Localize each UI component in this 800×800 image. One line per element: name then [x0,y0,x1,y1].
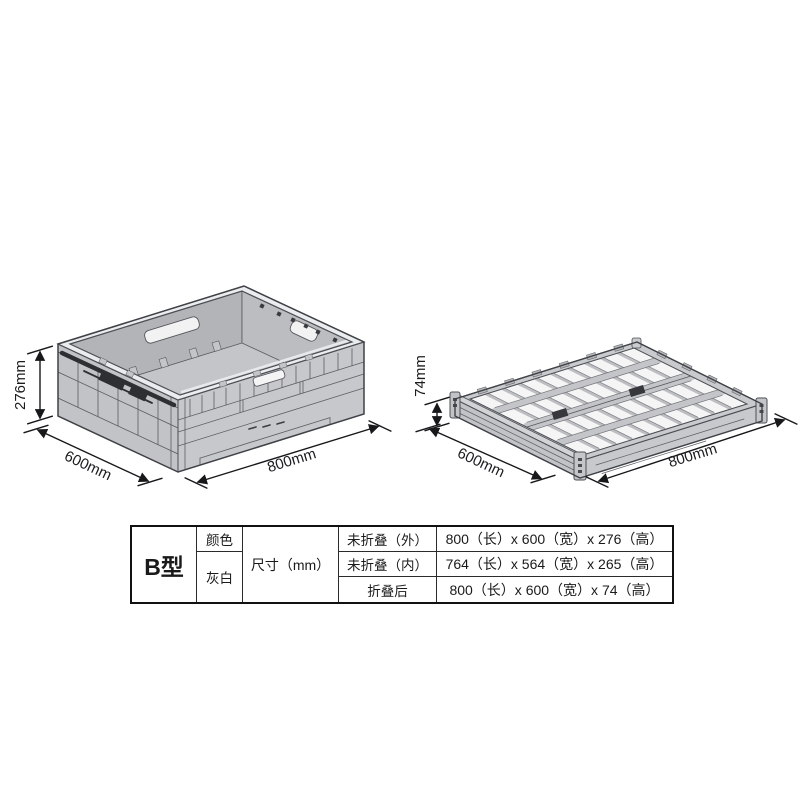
spec-table: B型 颜色 灰白 尺寸（mm） 未折叠（外） 800（长）x 600（宽）x 2… [130,525,674,604]
folded-crate-figure: 74mm 600mm 800mm [412,338,797,487]
value-unfolded-outer: 800（长）x 600（宽）x 276（高） [437,527,672,552]
condition-unfolded-inner: 未折叠（内） [339,552,437,577]
unfolded-crate-figure: 276mm 600mm 800mm [12,286,391,488]
folded-depth-label: 600mm [455,445,508,482]
unfolded-height-label: 276mm [12,360,29,410]
model-cell: B型 [132,527,197,602]
unfolded-width-label: 800mm [265,445,318,476]
color-label-cell: 颜色 [197,527,243,552]
condition-unfolded-outer: 未折叠（外） [339,527,437,552]
product-spec-sheet: { "figures": { "unfolded": { "height_lab… [0,0,800,800]
value-folded: 800（长）x 600（宽）x 74（高） [437,577,672,602]
folded-height-label: 74mm [412,355,429,397]
color-value-cell: 灰白 [197,552,243,602]
technical-drawing: 276mm 600mm 800mm [0,0,800,800]
value-unfolded-inner: 764（长）x 564（宽）x 265（高） [437,552,672,577]
size-label-cell: 尺寸（mm） [243,527,339,602]
condition-folded: 折叠后 [339,577,437,602]
